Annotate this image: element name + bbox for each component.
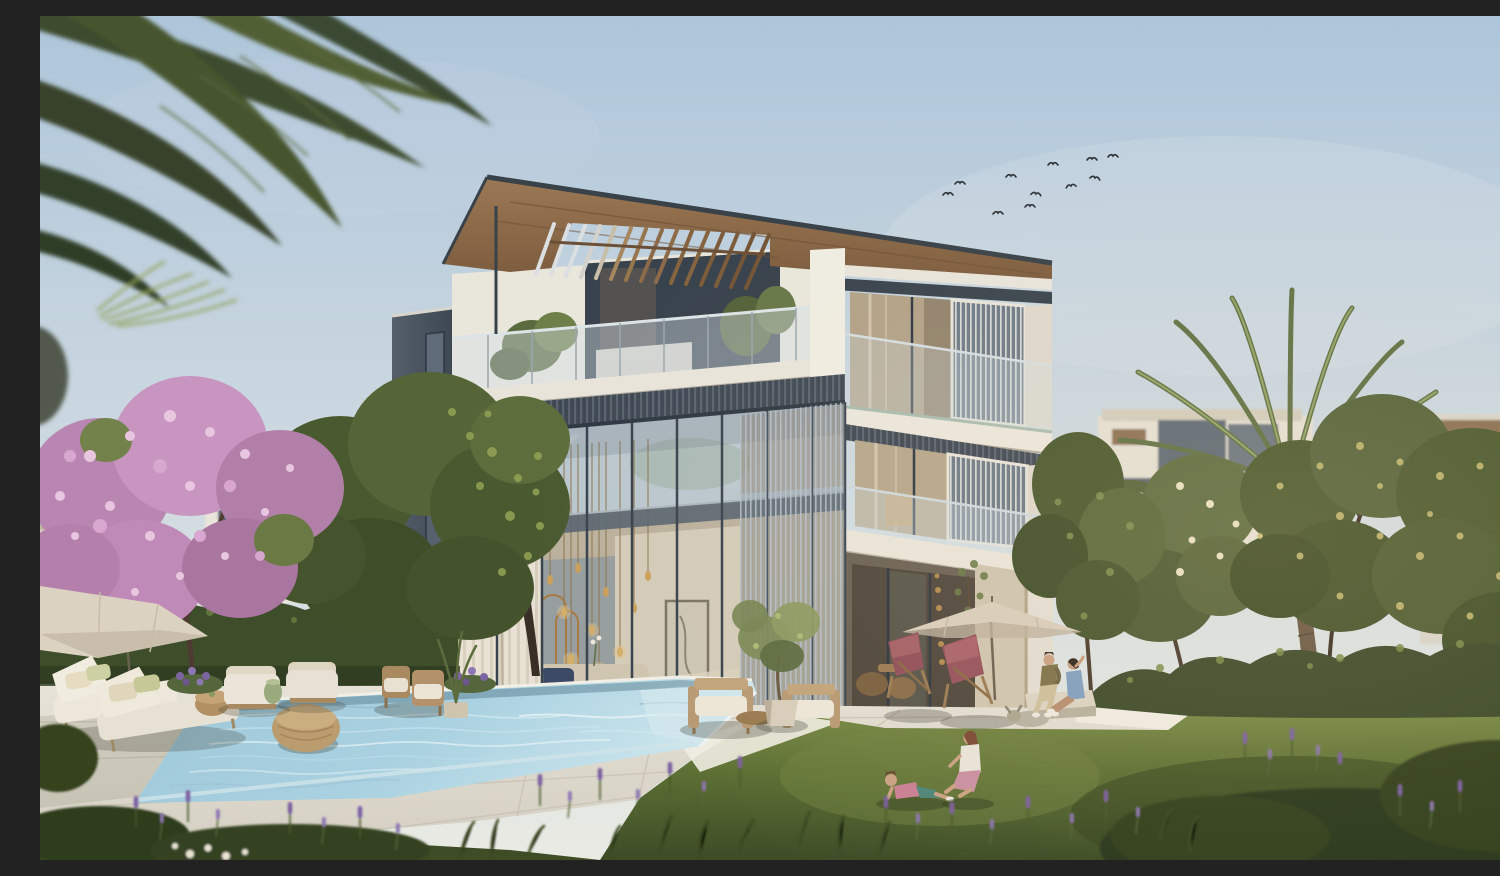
scene-canvas [40, 16, 1500, 860]
sunlight-haze [520, 116, 1500, 860]
architectural-render: Architectural exterior rendering: a flat… [40, 16, 1500, 860]
corner-armchairs [374, 666, 454, 718]
